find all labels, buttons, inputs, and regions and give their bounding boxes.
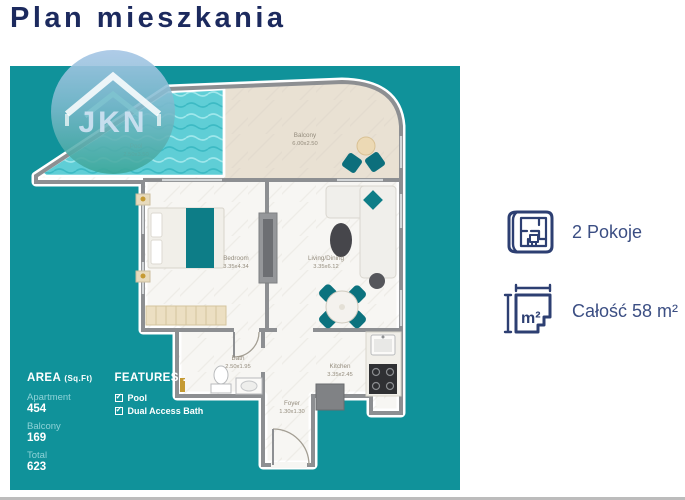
area-column: AREA (Sq.Ft) Apartment 454 Balcony 169 T…	[27, 372, 93, 480]
rooms-count-label: 2 Pokoje	[572, 222, 642, 243]
watermark-logo: JKN	[51, 50, 175, 174]
fact-total-area: m² Całość 58 m²	[501, 282, 678, 340]
page-title: Plan mieszkania	[10, 2, 287, 35]
checkbox-checked-icon	[115, 394, 123, 402]
lamp	[141, 197, 146, 202]
room-label: Bedroom	[223, 255, 249, 262]
room-dims: 6.00x2.50	[292, 141, 317, 147]
kitchen-block	[316, 384, 344, 410]
pillow	[151, 240, 162, 264]
checkbox-checked-icon	[115, 407, 123, 415]
area-item: Apartment 454	[27, 393, 93, 415]
feature-item: Dual Access Bath	[115, 406, 204, 416]
side-table	[369, 273, 385, 289]
area-heading: AREA (Sq.Ft)	[27, 372, 93, 384]
room-dims: 1.30x1.30	[279, 409, 304, 415]
lamp	[141, 274, 146, 279]
room-dims: 2.50x1.95	[225, 364, 250, 370]
pillow	[151, 213, 162, 237]
coffee-table	[330, 223, 352, 257]
total-area-label: Całość 58 m²	[572, 301, 678, 322]
room-label: Foyer	[284, 400, 300, 407]
room-label: Kitchen	[329, 363, 351, 370]
features-heading: FEATURES :	[115, 372, 204, 384]
room-dims: 3.35x4.34	[223, 264, 249, 270]
toilet-tank	[211, 384, 231, 393]
stove	[369, 364, 397, 394]
slide: Plan mieszkania	[0, 0, 685, 500]
floorplan-icon	[501, 203, 559, 261]
room-label: Bath	[232, 355, 245, 362]
area-item: Balcony 169	[27, 422, 93, 444]
balcony-table	[357, 137, 375, 155]
area-m2-icon: m²	[501, 282, 559, 340]
room-label: Balcony	[294, 132, 317, 139]
m2-icon-text: m²	[521, 310, 541, 327]
bed-blanket	[186, 208, 214, 268]
room-dims: 3.35x2.45	[327, 372, 352, 378]
facts-column: 2 Pokoje m² Całość 58 m²	[501, 203, 678, 361]
room-dims: 3.35x6.12	[313, 264, 338, 270]
area-features-panel: AREA (Sq.Ft) Apartment 454 Balcony 169 T…	[27, 372, 203, 480]
area-item: Total 623	[27, 451, 93, 473]
fact-rooms: 2 Pokoje	[501, 203, 678, 261]
feature-item: Pool	[115, 393, 204, 403]
features-column: FEATURES : Pool Dual Access Bath	[115, 372, 204, 480]
room-label: Living/Dining	[308, 255, 345, 262]
watermark-text: JKN	[51, 106, 175, 140]
